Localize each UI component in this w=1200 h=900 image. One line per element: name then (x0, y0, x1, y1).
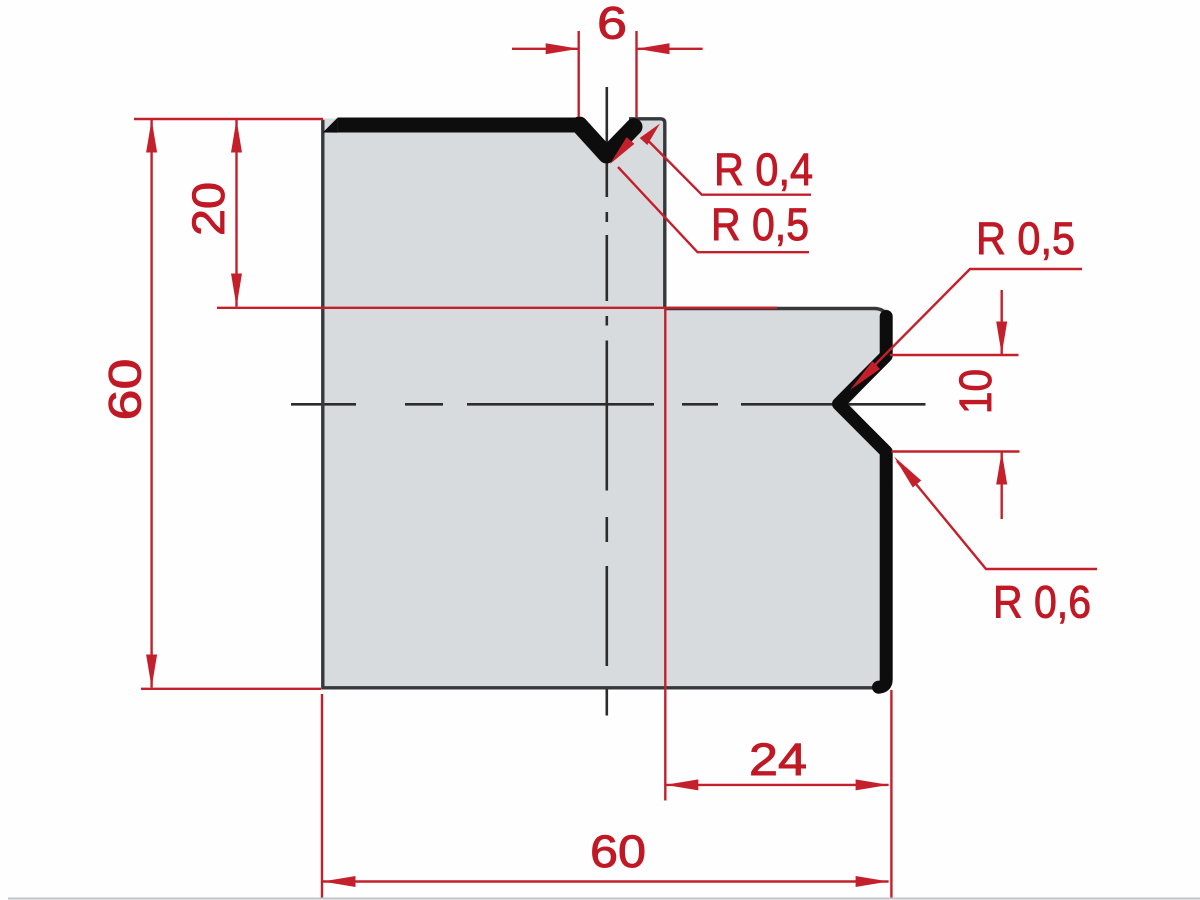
svg-text:R 0,6: R 0,6 (993, 577, 1091, 628)
svg-text:60: 60 (100, 359, 151, 421)
svg-text:24: 24 (749, 734, 807, 785)
svg-text:10: 10 (950, 369, 1001, 414)
svg-text:R 0,4: R 0,4 (714, 144, 813, 195)
svg-text:R 0,5: R 0,5 (711, 199, 809, 250)
svg-text:20: 20 (183, 182, 234, 236)
svg-text:6: 6 (597, 0, 627, 49)
svg-text:60: 60 (590, 826, 646, 877)
svg-text:R 0,5: R 0,5 (976, 213, 1075, 264)
